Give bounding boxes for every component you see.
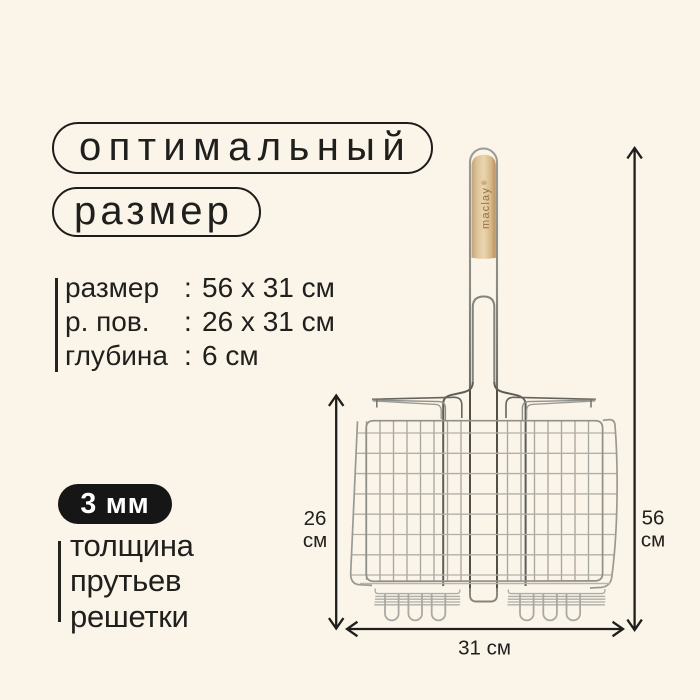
svg-text:31 см: 31 см (458, 637, 511, 660)
svg-text:см: см (641, 529, 665, 552)
svg-text:®: ® (482, 180, 489, 185)
svg-text:26: 26 (304, 507, 327, 530)
svg-text:56: 56 (642, 507, 665, 530)
svg-text:см: см (303, 529, 327, 552)
svg-text:maclay: maclay (480, 187, 492, 229)
